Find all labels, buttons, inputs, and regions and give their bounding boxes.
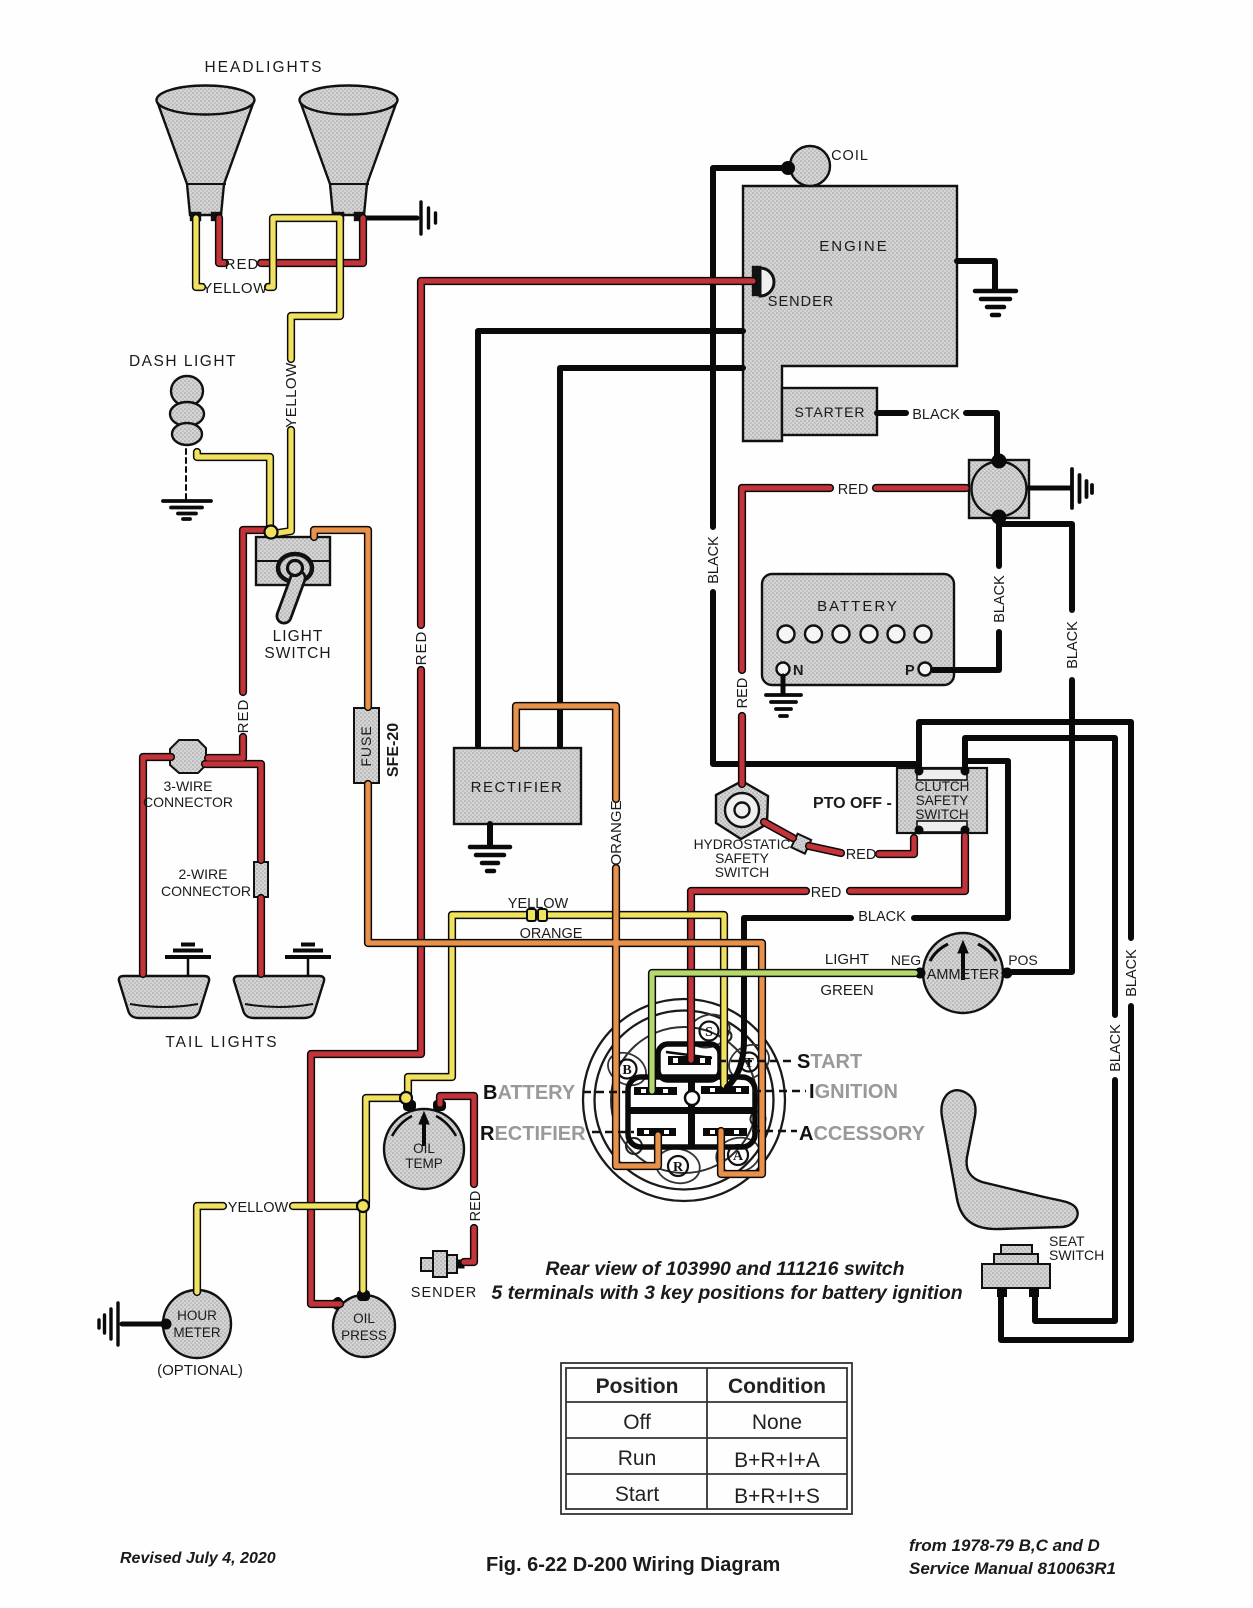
svg-text:PTO OFF -: PTO OFF - bbox=[813, 795, 892, 812]
svg-text:(OPTIONAL): (OPTIONAL) bbox=[157, 1362, 243, 1379]
svg-text:RECTIFIER: RECTIFIER bbox=[471, 779, 564, 796]
svg-text:SWITCH: SWITCH bbox=[1049, 1247, 1104, 1263]
svg-text:ORANGE: ORANGE bbox=[608, 800, 625, 865]
svg-text:DASH LIGHT: DASH LIGHT bbox=[129, 353, 237, 370]
svg-text:ORANGE: ORANGE bbox=[520, 926, 583, 942]
svg-text:GREEN: GREEN bbox=[820, 982, 873, 999]
svg-text:STARTER: STARTER bbox=[794, 404, 865, 420]
svg-text:CONNECTOR: CONNECTOR bbox=[161, 883, 251, 899]
svg-text:SAFETY: SAFETY bbox=[715, 851, 769, 866]
svg-text:RED: RED bbox=[468, 1191, 484, 1222]
svg-text:AMMETER: AMMETER bbox=[927, 967, 1000, 983]
svg-text:LIGHT: LIGHT bbox=[825, 951, 869, 968]
svg-text:B+R+I+A: B+R+I+A bbox=[734, 1449, 820, 1472]
svg-text:CLUTCH: CLUTCH bbox=[915, 779, 970, 794]
svg-text:BATTERY: BATTERY bbox=[817, 598, 899, 615]
svg-text:P: P bbox=[905, 663, 915, 679]
svg-text:YELLOW: YELLOW bbox=[228, 1200, 289, 1216]
svg-text:RED: RED bbox=[838, 482, 869, 498]
svg-text:IGNITION: IGNITION bbox=[809, 1081, 898, 1103]
svg-text:Position: Position bbox=[596, 1375, 679, 1398]
svg-text:PRESS: PRESS bbox=[341, 1328, 387, 1343]
svg-text:RED: RED bbox=[846, 847, 877, 863]
svg-text:HEADLIGHTS: HEADLIGHTS bbox=[204, 59, 323, 76]
svg-text:S: S bbox=[705, 1025, 713, 1040]
svg-text:from 1978-79 B,C and D: from 1978-79 B,C and D bbox=[909, 1536, 1100, 1555]
svg-text:SFE-20: SFE-20 bbox=[385, 723, 402, 777]
svg-text:Condition: Condition bbox=[728, 1375, 826, 1398]
svg-text:SWITCH: SWITCH bbox=[264, 645, 331, 662]
svg-text:YELLOW: YELLOW bbox=[202, 280, 268, 297]
svg-text:YELLOW: YELLOW bbox=[283, 362, 300, 428]
svg-text:BLACK: BLACK bbox=[912, 407, 960, 423]
svg-text:HOUR: HOUR bbox=[177, 1308, 217, 1323]
svg-text:ENGINE: ENGINE bbox=[819, 238, 889, 255]
svg-text:Off: Off bbox=[623, 1411, 651, 1434]
svg-text:BLACK: BLACK bbox=[1065, 621, 1081, 669]
svg-text:RED: RED bbox=[413, 631, 430, 666]
svg-text:SAFETY: SAFETY bbox=[916, 793, 969, 808]
svg-text:RED: RED bbox=[735, 678, 751, 709]
svg-text:5 terminals with 3 key positio: 5 terminals with 3 key positions for bat… bbox=[491, 1282, 962, 1304]
svg-text:Rear view of 103990 and 111216: Rear view of 103990 and 111216 switch bbox=[545, 1258, 904, 1280]
svg-text:Run: Run bbox=[618, 1447, 657, 1470]
svg-text:Service Manual 810063R1: Service Manual 810063R1 bbox=[909, 1559, 1116, 1578]
svg-text:BLACK: BLACK bbox=[858, 909, 906, 925]
svg-text:Start: Start bbox=[615, 1483, 660, 1506]
svg-text:SENDER: SENDER bbox=[411, 1285, 477, 1301]
svg-text:OIL: OIL bbox=[413, 1141, 435, 1156]
svg-text:RED: RED bbox=[225, 256, 260, 273]
svg-text:RED: RED bbox=[235, 699, 252, 734]
svg-text:2-WIRE: 2-WIRE bbox=[179, 866, 228, 882]
svg-text:3-WIRE: 3-WIRE bbox=[164, 778, 213, 794]
svg-text:Fig. 6-22 D-200 Wiring Diagra: Fig. 6-22 D-200 Wiring Diagram bbox=[486, 1554, 780, 1576]
svg-text:BATTERY: BATTERY bbox=[483, 1082, 576, 1104]
svg-text:START: START bbox=[797, 1051, 862, 1073]
svg-text:A: A bbox=[733, 1149, 744, 1164]
svg-text:R: R bbox=[673, 1160, 684, 1175]
svg-text:COIL: COIL bbox=[831, 148, 869, 164]
svg-text:HYDROSTATIC: HYDROSTATIC bbox=[694, 837, 791, 852]
svg-text:FUSE: FUSE bbox=[358, 725, 374, 766]
svg-text:METER: METER bbox=[173, 1325, 221, 1340]
svg-text:BLACK: BLACK bbox=[706, 536, 722, 584]
svg-text:SWITCH: SWITCH bbox=[915, 807, 968, 822]
svg-text:B+R+I+S: B+R+I+S bbox=[734, 1485, 820, 1508]
svg-text:TAIL LIGHTS: TAIL LIGHTS bbox=[165, 1034, 278, 1051]
svg-text:N: N bbox=[793, 663, 803, 679]
svg-text:YELLOW: YELLOW bbox=[508, 896, 569, 912]
svg-text:Revised July 4, 2020: Revised July 4, 2020 bbox=[120, 1550, 276, 1567]
svg-text:BLACK: BLACK bbox=[992, 575, 1008, 623]
svg-text:POS: POS bbox=[1008, 952, 1038, 968]
svg-text:SWITCH: SWITCH bbox=[715, 865, 769, 880]
svg-text:T: T bbox=[744, 1056, 754, 1071]
svg-text:None: None bbox=[752, 1411, 802, 1434]
svg-text:RED: RED bbox=[811, 885, 842, 901]
svg-text:ACCESSORY: ACCESSORY bbox=[799, 1123, 926, 1145]
svg-text:NEG: NEG bbox=[891, 952, 921, 968]
svg-text:OIL: OIL bbox=[353, 1311, 375, 1326]
svg-text:TEMP: TEMP bbox=[405, 1156, 443, 1171]
svg-text:BLACK: BLACK bbox=[1108, 1024, 1124, 1072]
svg-text:BLACK: BLACK bbox=[1124, 949, 1140, 997]
svg-text:B: B bbox=[622, 1063, 631, 1078]
svg-text:LIGHT: LIGHT bbox=[273, 628, 324, 645]
svg-text:RECTIFIER: RECTIFIER bbox=[480, 1123, 586, 1145]
svg-text:SENDER: SENDER bbox=[768, 294, 834, 310]
svg-text:CONNECTOR: CONNECTOR bbox=[143, 794, 233, 810]
